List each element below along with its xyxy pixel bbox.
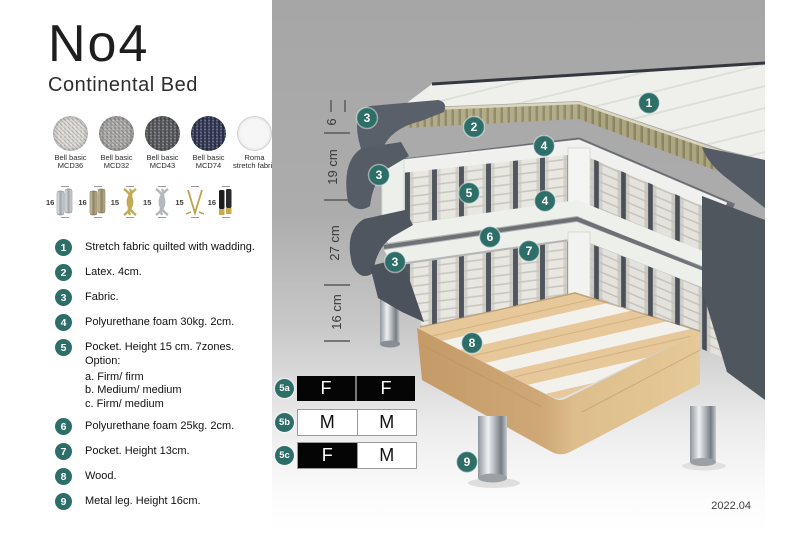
firmness-badge-5b: 5b xyxy=(275,413,294,432)
fabric-swatch-circle xyxy=(237,116,272,151)
fabric-swatch-option: Bell basicMCD43 xyxy=(142,116,183,171)
product-title: No4 xyxy=(48,18,198,70)
fabric-swatch-option: Romastretch fabric xyxy=(234,116,275,171)
svg-text:6: 6 xyxy=(487,230,494,244)
cylinder-silver-leg-icon xyxy=(55,188,75,216)
firmness-box-5c: F M xyxy=(297,442,417,469)
feature-badge-8: 8 xyxy=(55,468,72,485)
leg-option-cylinder-silver: 16 xyxy=(46,185,75,219)
callout-6: 6 xyxy=(480,227,501,248)
feature-badge-1: 1 xyxy=(55,239,72,256)
leg-options: 16 16 15 xyxy=(46,185,235,219)
svg-text:1: 1 xyxy=(646,96,653,110)
product-render-panel: 6 19 cm 27 cm 16 cm 1 2 3 3 3 4 4 5 6 7 … xyxy=(272,0,765,533)
feature-badge-9: 9 xyxy=(55,493,72,510)
cylinder-black-gold-leg-icon xyxy=(217,188,235,216)
measure-16cm: 16 cm xyxy=(329,294,344,329)
callout-4b: 4 xyxy=(535,191,556,212)
measure-19cm: 19 cm xyxy=(325,149,340,184)
leg-option-hairpin-gold: 15 xyxy=(175,185,204,219)
feature-item-8: 8 Wood. xyxy=(55,468,270,485)
callout-3b: 3 xyxy=(369,165,390,186)
callout-7: 7 xyxy=(519,241,540,262)
feature-5-options: a. Firm/ firm b. Medium/ medium c. Firm/… xyxy=(85,371,270,411)
svg-text:8: 8 xyxy=(469,336,476,350)
version-stamp: 2022.04 xyxy=(711,500,751,512)
callout-5: 5 xyxy=(459,183,480,204)
feature-list: 1 Stretch fabric quilted with wadding. 2… xyxy=(55,239,270,518)
callout-9: 9 xyxy=(457,452,478,473)
feature-badge-3: 3 xyxy=(55,289,72,306)
feature-badge-2: 2 xyxy=(55,264,72,281)
firmness-option-5c: 5c F M xyxy=(275,442,417,469)
svg-text:5: 5 xyxy=(466,186,473,200)
metal-leg-center xyxy=(478,416,507,478)
corner-post-lower xyxy=(568,232,590,300)
measurement-labels: 6 19 cm 27 cm 16 cm xyxy=(324,118,344,329)
measure-6: 6 xyxy=(324,118,339,125)
feature-badge-6: 6 xyxy=(55,418,72,435)
feature-badge-4: 4 xyxy=(55,314,72,331)
feature-badge-5: 5 xyxy=(55,339,72,356)
svg-text:3: 3 xyxy=(392,255,399,269)
feature-item-3: 3 Fabric. xyxy=(55,289,270,306)
fabric-swatch-circle xyxy=(145,116,180,151)
svg-text:2: 2 xyxy=(471,120,478,134)
callout-3a: 3 xyxy=(357,108,378,129)
fabric-swatch-option: Bell basicMCD32 xyxy=(96,116,137,171)
feature-item-7: 7 Pocket. Height 13cm. xyxy=(55,443,270,460)
firmness-box-5a: F F xyxy=(297,376,415,401)
callout-3c: 3 xyxy=(385,252,406,273)
fabric-swatch-option: Bell basicMCD36 xyxy=(50,116,91,171)
svg-text:4: 4 xyxy=(542,194,549,208)
fabric-swatch-circle xyxy=(99,116,134,151)
svg-text:3: 3 xyxy=(376,168,383,182)
firmness-option-5a: 5a F F xyxy=(275,376,415,401)
callout-2: 2 xyxy=(464,117,485,138)
callout-8: 8 xyxy=(462,333,483,354)
firmness-badge-5c: 5c xyxy=(275,446,294,465)
twist-gold-leg-icon xyxy=(120,188,140,216)
feature-item-5: 5 Pocket. Height 15 cm. 7zones. Option: xyxy=(55,339,270,369)
svg-text:7: 7 xyxy=(526,244,533,258)
callout-4a: 4 xyxy=(534,136,555,157)
svg-text:9: 9 xyxy=(464,455,471,469)
svg-text:3: 3 xyxy=(364,111,371,125)
feature-badge-7: 7 xyxy=(55,443,72,460)
callout-1: 1 xyxy=(639,93,660,114)
firmness-badge-5a: 5a xyxy=(275,379,294,398)
feature-item-2: 2 Latex. 4cm. xyxy=(55,264,270,281)
metal-leg-right xyxy=(690,406,716,462)
feature-item-1: 1 Stretch fabric quilted with wadding. xyxy=(55,239,270,256)
fabric-swatch-option: Bell basicMCD74 xyxy=(188,116,229,171)
cylinder-bronze-leg-icon xyxy=(88,188,108,216)
measure-27cm: 27 cm xyxy=(327,225,342,260)
leg-option-twist-silver: 15 xyxy=(143,185,172,219)
info-panel: No4 Continental Bed Bell basicMCD36 Bell… xyxy=(0,0,272,533)
svg-text:4: 4 xyxy=(541,139,548,153)
feature-item-4: 4 Polyurethane foam 30kg. 2cm. xyxy=(55,314,270,331)
firmness-option-5b: 5b M M xyxy=(275,409,417,436)
corner-post-upper xyxy=(568,148,590,208)
leg-option-cylinder-bronze: 16 xyxy=(78,185,107,219)
leg-option-twist-gold: 15 xyxy=(111,185,140,219)
hairpin-gold-leg-icon xyxy=(185,188,205,216)
fabric-swatches: Bell basicMCD36 Bell basicMCD32 Bell bas… xyxy=(50,116,275,171)
feature-item-9: 9 Metal leg. Height 16cm. xyxy=(55,493,270,510)
brand-block: No4 Continental Bed xyxy=(48,18,198,97)
product-subtitle: Continental Bed xyxy=(48,74,198,97)
fabric-swatch-circle xyxy=(53,116,88,151)
twist-silver-leg-icon xyxy=(152,188,172,216)
feature-item-6: 6 Polyurethane foam 25kg. 2cm. xyxy=(55,418,270,435)
fabric-swatch-circle xyxy=(191,116,226,151)
leg-option-cylinder-black-gold: 16 xyxy=(208,185,235,219)
upholstery-right-side xyxy=(702,196,765,400)
firmness-box-5b: M M xyxy=(297,409,417,436)
